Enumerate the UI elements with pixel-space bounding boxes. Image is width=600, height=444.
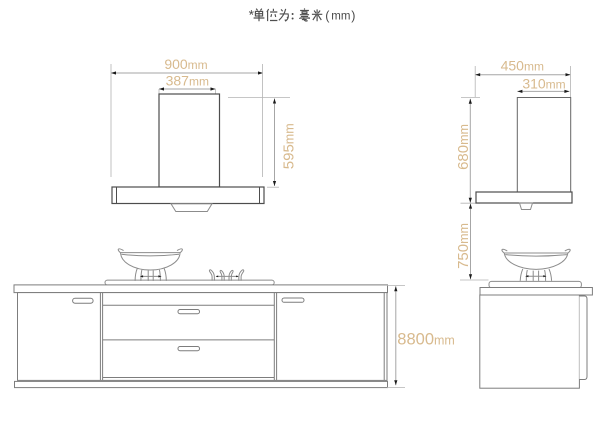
svg-text:8800mm: 8800mm [397, 330, 455, 348]
svg-text:): ) [351, 9, 355, 23]
svg-text:450mm: 450mm [501, 58, 544, 74]
svg-text:900mm: 900mm [164, 56, 207, 72]
svg-text:750mm: 750mm [455, 223, 472, 269]
svg-text:595mm: 595mm [280, 123, 297, 169]
svg-text:*: * [249, 7, 255, 23]
svg-text:310mm: 310mm [522, 76, 565, 92]
svg-text:mm: mm [331, 11, 350, 23]
svg-text:680mm: 680mm [455, 124, 472, 170]
svg-text:387mm: 387mm [166, 72, 209, 88]
